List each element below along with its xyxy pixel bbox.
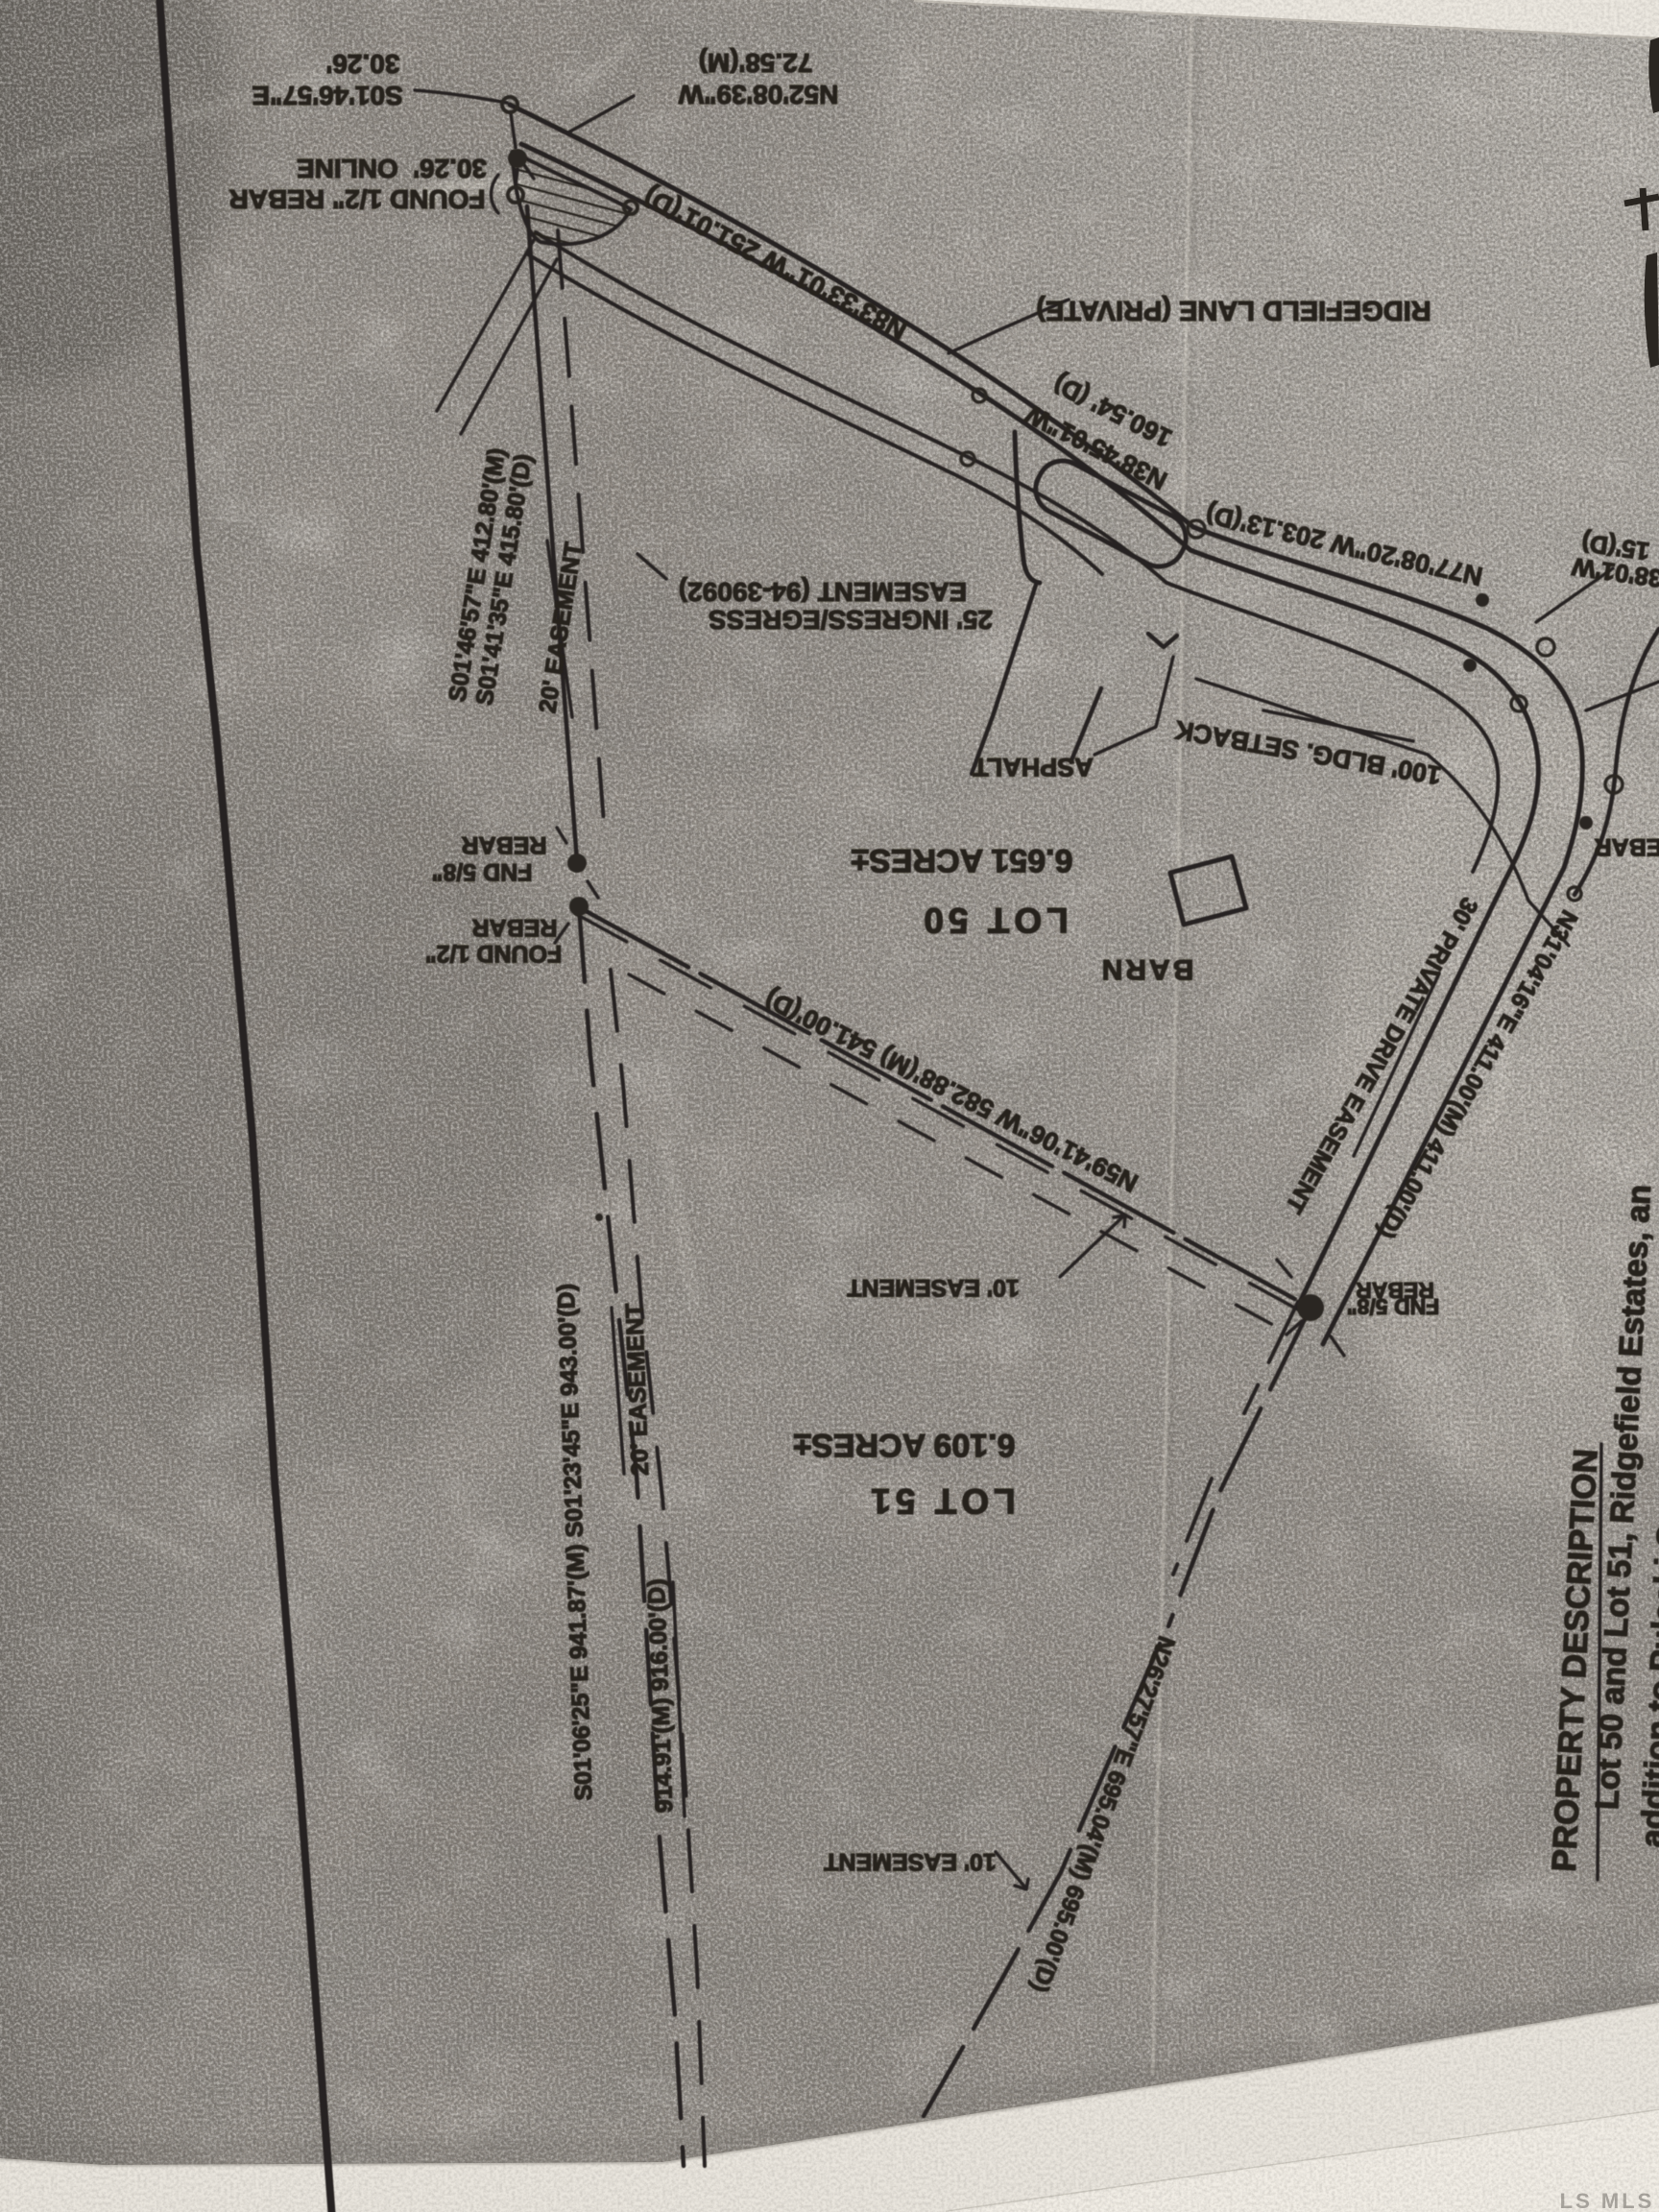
svg-text:FND 5/8": FND 5/8" — [432, 858, 533, 885]
svg-text:RIDGEFIELD LANE (PRIVATE): RIDGEFIELD LANE (PRIVATE) — [1036, 295, 1431, 325]
svg-text:LOT 50: LOT 50 — [919, 901, 1068, 940]
svg-text:25' INGRESS/EGRESS: 25' INGRESS/EGRESS — [709, 605, 993, 635]
svg-text:10' EASEMENT: 10' EASEMENT — [847, 1274, 1020, 1301]
svg-text:10' EASEMENT: 10' EASEMENT — [824, 1848, 997, 1875]
svg-text:EASEMENT (94-39092): EASEMENT (94-39092) — [679, 577, 967, 607]
svg-text:6.109 ACRES±: 6.109 ACRES± — [794, 1427, 1016, 1463]
svg-text:REBAR: REBAR — [462, 831, 547, 858]
svg-text:30.26' ONLINE: 30.26' ONLINE — [297, 154, 487, 183]
svg-text:REBAR: REBAR — [472, 914, 558, 941]
svg-text:FOUND 1/2": FOUND 1/2" — [425, 940, 562, 967]
svg-text:FND 5/8": FND 5/8" — [1347, 1294, 1440, 1319]
svg-text:30.26': 30.26' — [326, 49, 400, 79]
svg-text:6.651 ACRES±: 6.651 ACRES± — [852, 842, 1073, 878]
svg-text:S01'46'57"E: S01'46'57"E — [252, 81, 402, 110]
svg-text:REBAR: REBAR — [1595, 833, 1659, 860]
svg-text:FOUND 1/2" REBAR: FOUND 1/2" REBAR — [229, 184, 486, 214]
svg-text:72.58'(M): 72.58'(M) — [699, 48, 813, 78]
svg-text:ASPHALT: ASPHALT — [973, 753, 1094, 781]
svg-text:N52'08'39"W: N52'08'39"W — [678, 80, 838, 109]
svg-text:LOT 51: LOT 51 — [866, 1481, 1015, 1521]
svg-text:BARN: BARN — [1099, 953, 1194, 985]
